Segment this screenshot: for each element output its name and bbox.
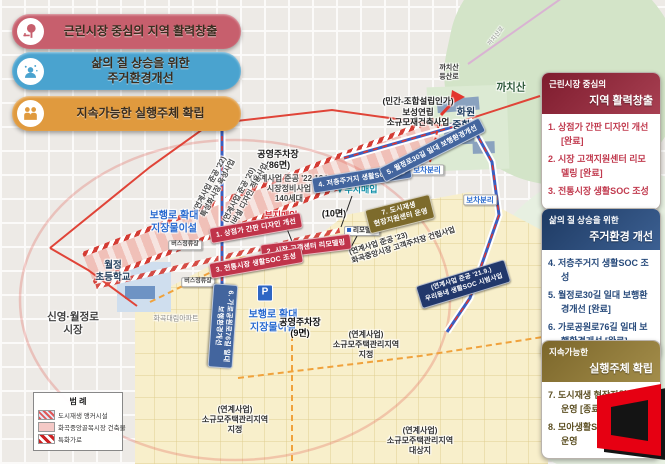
urban-regeneration-map-poster: 1. 상점가 간판 디자인 개선 2. 시장 고객센터 리모델링 3. 전통시장… [0,0,665,464]
school-building [472,141,494,154]
label-walkway-expand-west: 보행로 확대 지장물이설 [150,211,199,236]
label-boseong-rebuild: (민간-조합설립인가) 보성연립 소규모재건축사업 [382,96,453,128]
label-small-housing-zone-2: (연계사업) 소규모주택관리지역 지정 [202,405,268,435]
legend-row: 화곡중앙골목시장 건축물 [38,422,118,432]
label-daelim-apartment: 화곡대림아파트 [153,316,198,325]
panel-item: 7. 도시재생 현장지원센터 운영 [종료] [548,389,654,416]
panel-living-quality: 삶의 질 상승을 위한 주거환경 개선 4. 저층주거지 생활SOC 조성 5.… [541,208,661,359]
panel-item: 3. 전통시장 생활SOC 조성 [548,185,654,199]
panel-sustainable-actors: 지속가능한 실행주체 확립 7. 도시재생 현장지원센터 운영 [종료] 8. … [541,340,661,459]
panel-market-vitality: 근린시장 중심의 지역 활력창출 1. 상점가 간판 디자인 개선 [완료] 2… [541,72,661,210]
legend-label: 화곡중앙골목시장 건축물 [58,422,126,432]
goal-label: 지속가능한 실행주체 확립 [50,106,231,121]
resident-icon [17,58,44,85]
panel-item: 2. 시장 고객지원센터 리모델링 [완료] [548,153,654,180]
panel-title-main: 주거환경 개선 [549,228,653,244]
label-kkachisan: 까치산 [497,81,526,94]
panel-item: 1. 상점가 간판 디자인 개선 [완료] [548,121,654,148]
legend-row: 특화가로 [38,434,118,444]
panel-item-list: 1. 상점가 간판 디자인 개선 [완료] 2. 시장 고객지원센터 리모델링 … [542,114,660,209]
label-woljeong-elementary: 월정 초등학교 [96,260,131,284]
legend-label: 특화가로 [58,434,82,444]
legend-row: 도시재생 앵커시설 [38,410,118,420]
goal-pill-sustainable-actors: 지속가능한 실행주체 확립 [12,96,241,131]
panel-header: 근린시장 중심의 지역 활력창출 [542,73,660,114]
label-ped-vehicle-sep-2: 보차분리 [463,194,497,205]
panel-item: 5. 월정로30길 일대 보행환경개선 [완료] [548,289,654,316]
goal-label: 삶의 질 상승을 위한 주거환경개선 [50,56,231,86]
anchor-facility-swatch [38,410,55,420]
label-public-parking-9: 공영주차장 (9면) [279,317,320,340]
legend-title: 범 례 [38,396,118,407]
panel-header: 지속가능한 실행주체 확립 [542,341,660,382]
label-hiking-trail: 까치산 등산로 [439,64,458,82]
label-small-housing-target: (연계사업) 소규모주택관리지역 대상지 [387,426,453,456]
panel-title-main: 실행주체 확립 [549,360,653,376]
panel-title-top: 근린시장 중심의 [549,78,653,90]
panel-item-list: 7. 도시재생 현장지원센터 운영 [종료] 8. 모아생활SOC 협동조합 운… [542,382,660,458]
goal-label: 근린시장 중심의 지역 활력창출 [50,24,231,39]
panel-item: 8. 모아생활SOC 협동조합 운영 [548,421,654,448]
label-sinyeong-market: 신영·월정로 시장 [47,311,99,337]
legend-label: 도시재생 앵커시설 [58,410,108,420]
label-bus-stop-1: 버스정류장 [168,240,202,250]
panel-title-top: 지속가능한 [549,346,653,358]
panel-title-top: 삶의 질 상승을 위한 [549,214,653,226]
parking-p-icon: P [257,285,273,302]
tree-bench-icon [17,18,44,45]
partners-handshake-icon [17,100,44,127]
panel-item: 4. 저층주거지 생활SOC 조성 [548,257,654,284]
goal-pill-living-quality: 삶의 질 상승을 위한 주거환경개선 [12,52,241,90]
label-bus-stop-2: 버스정류장 [181,277,215,287]
market-building-swatch [38,422,55,432]
panel-header: 삶의 질 상승을 위한 주거환경 개선 [542,209,660,250]
school-building [125,286,155,299]
goal-pill-market-vitality: 근린시장 중심의 지역 활력창출 [12,14,241,49]
panel-title-main: 지역 활력창출 [549,92,653,108]
map-legend: 범 례 도시재생 앵커시설 화곡중앙골목시장 건축물 특화가로 [33,392,123,451]
label-small-housing-zone-1: (연계사업) 소규모주택관리지역 지정 [333,330,399,360]
special-street-swatch [38,434,55,444]
label-10-spaces: (10면) [322,208,346,219]
